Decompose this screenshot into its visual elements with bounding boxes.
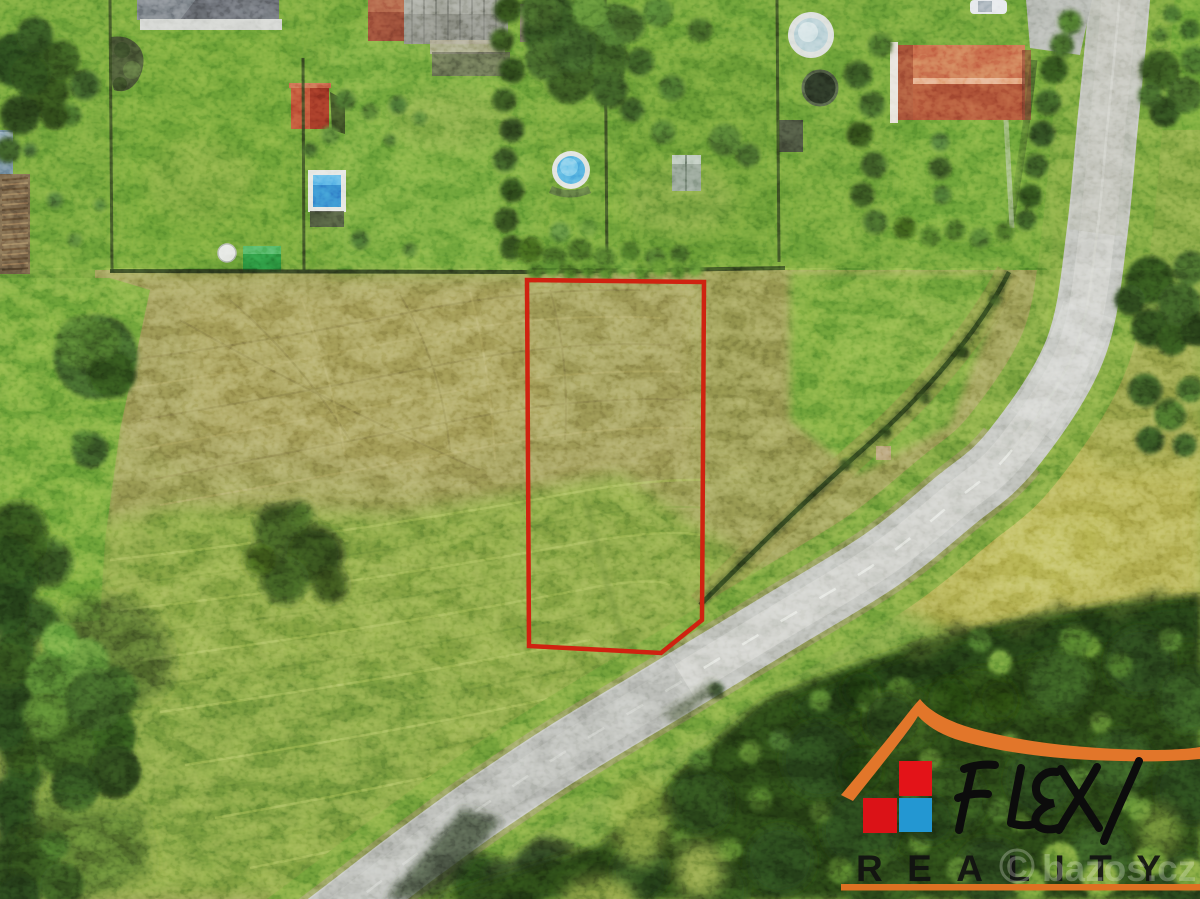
svg-text:bazos.cz: bazos.cz (1042, 848, 1196, 889)
svg-text:C: C (1006, 851, 1028, 884)
